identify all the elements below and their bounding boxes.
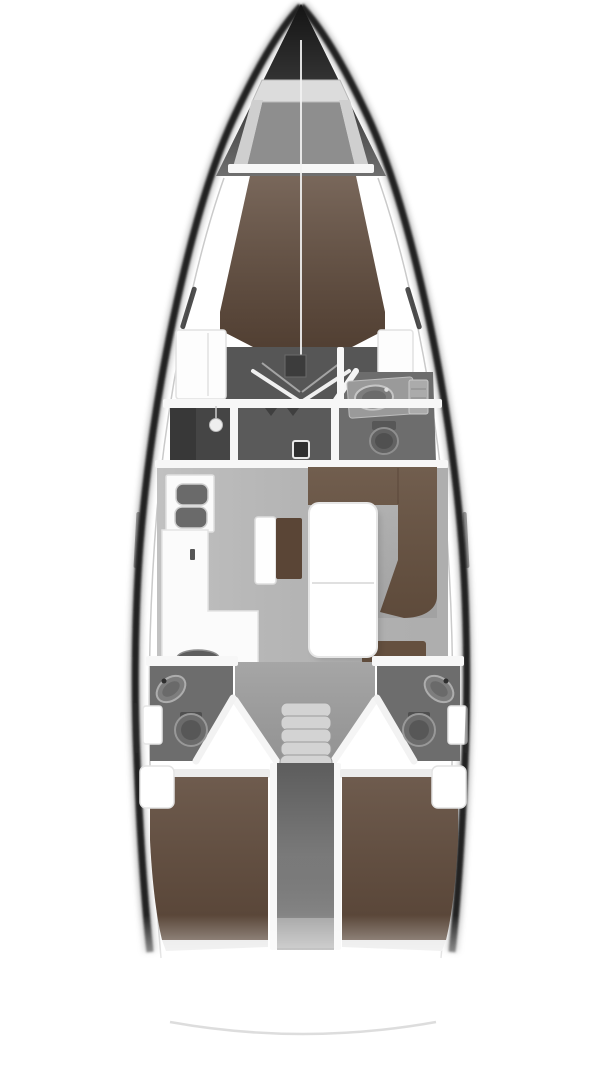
mast-step-block <box>285 355 306 377</box>
starboard-forward-locker <box>378 330 413 374</box>
salon-table <box>309 503 377 657</box>
entry-corridor-floor <box>238 404 331 463</box>
step-3 <box>281 729 331 743</box>
v-berth-shading <box>220 176 385 347</box>
yacht-floor-plan <box>0 0 608 1080</box>
forward-head-sink-counter <box>347 377 415 419</box>
port-forward-locker <box>176 330 226 399</box>
navigation-seat <box>276 518 302 579</box>
head-partition-wall-upper <box>337 347 344 403</box>
forward-head-toilet-bowl <box>375 433 393 449</box>
salon-forward-bulkhead <box>155 460 448 468</box>
starboard-deck-hatch <box>432 766 466 808</box>
starboard-hull-locker <box>448 706 467 744</box>
step-1 <box>281 703 331 717</box>
forward-head-cabinet <box>409 380 428 414</box>
galley-latch <box>190 549 195 560</box>
stern-fade-overlay <box>100 915 510 1050</box>
wardrobe-floor-dark-side <box>170 404 196 463</box>
port-aft-head-toilet-bowl <box>181 720 201 740</box>
floor-hatch <box>293 441 309 458</box>
starboard-aft-head-top-wall <box>372 656 464 666</box>
starboard-aft-head-drain <box>444 679 449 684</box>
port-hull-locker <box>143 706 162 744</box>
galley-sink-basin-2 <box>175 507 207 528</box>
galley-sink-basin-1 <box>176 484 208 505</box>
mid-bulkhead-wall <box>163 399 442 408</box>
companionway-area <box>143 656 467 770</box>
port-aft-head-top-wall <box>146 656 238 666</box>
port-aft-head-drain <box>162 679 167 684</box>
step-4 <box>281 742 331 756</box>
step-2 <box>281 716 331 730</box>
salon <box>157 467 448 666</box>
forward-head <box>336 371 436 462</box>
pendant-light <box>210 419 223 432</box>
port-deck-hatch <box>140 766 174 808</box>
companionway-steps <box>280 703 332 770</box>
wardrobe-partition-wall <box>230 404 238 464</box>
navigation-bench <box>255 517 276 584</box>
yacht-floor-plan-canvas <box>0 0 608 1080</box>
head-partition-wall-lower <box>331 404 339 464</box>
starboard-aft-head-toilet-bowl <box>409 720 429 740</box>
